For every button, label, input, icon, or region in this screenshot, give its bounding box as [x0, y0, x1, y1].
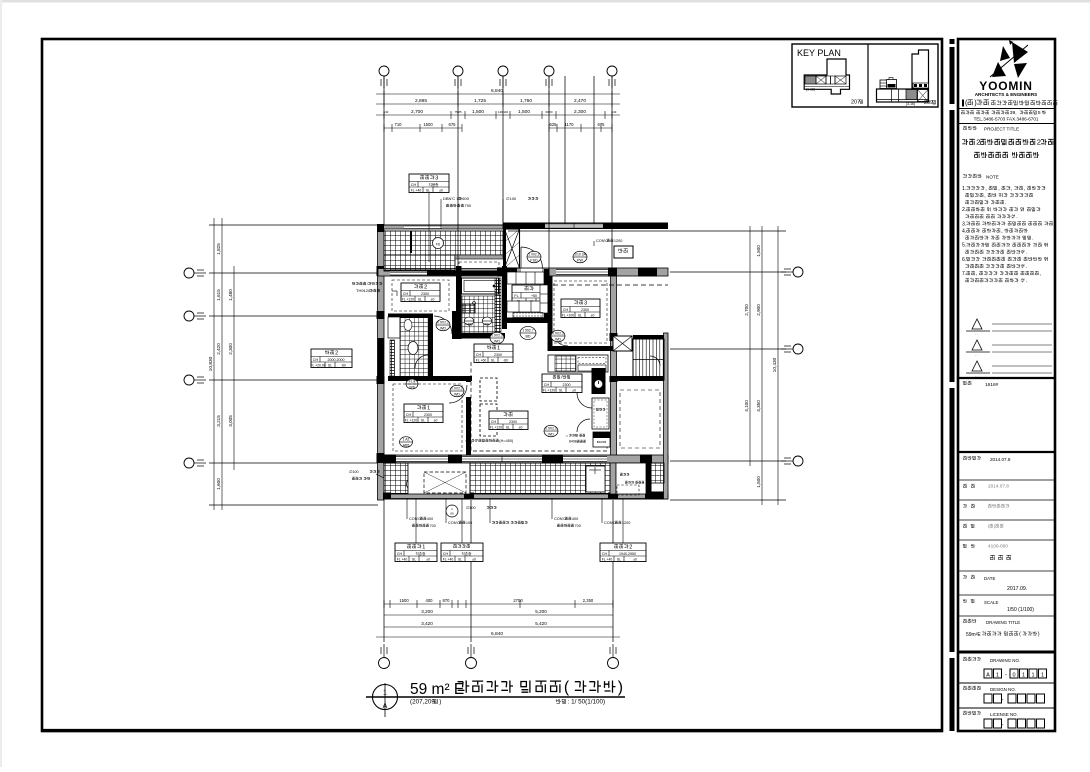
svg-text:1,615: 1,615: [216, 289, 221, 301]
svg-text:(H=450): (H=450): [499, 439, 514, 443]
svg-text:2014.07.8: 2014.07.8: [988, 484, 1009, 489]
svg-text:DRAWING TITLE: DRAWING TITLE: [986, 620, 1020, 625]
svg-text:FL +40: FL +40: [602, 557, 613, 561]
svg-text:1,500: 1,500: [518, 109, 530, 115]
svg-text:CH: CH: [443, 552, 449, 556]
svg-text:(3-16): (3-16): [906, 102, 915, 106]
svg-text:∅100: ∅100: [506, 196, 517, 201]
svg-text:400: 400: [427, 517, 433, 521]
svg-text:SCALE: SCALE: [984, 600, 998, 605]
svg-text:W6: W6: [409, 386, 414, 390]
svg-text:700: 700: [575, 524, 581, 528]
svg-text:WD: WD: [555, 338, 561, 342]
svg-text:1: 1: [422, 544, 425, 550]
svg-text:±0: ±0: [434, 418, 438, 422]
svg-text:SL: SL: [506, 425, 510, 429]
svg-text:(: (: [564, 679, 570, 696]
svg-text:6.: 6.: [962, 257, 966, 263]
svg-text:100: 100: [466, 521, 472, 525]
svg-text:SL: SL: [412, 557, 416, 561]
svg-text:400: 400: [426, 598, 434, 603]
svg-text:PROJECT TITLE: PROJECT TITLE: [984, 127, 1019, 132]
svg-text:SL: SL: [491, 358, 495, 362]
svg-text:1500: 1500: [399, 598, 409, 603]
svg-text:,: ,: [976, 271, 977, 277]
svg-text:SL: SL: [421, 418, 425, 422]
svg-text:CH: CH: [563, 308, 569, 312]
svg-text:FL 8: FL 8: [409, 380, 416, 384]
svg-text:1,600: 1,600: [216, 478, 221, 490]
svg-text:209: 209: [924, 100, 933, 106]
svg-text:직촌중: 직촌중: [462, 551, 473, 556]
svg-text:FL +40: FL +40: [397, 557, 408, 561]
svg-text:WD: WD: [494, 340, 500, 344]
svg-text:. .: . .: [975, 331, 978, 336]
svg-text:2: 2: [976, 138, 980, 147]
svg-text:1,825: 1,825: [216, 243, 221, 255]
svg-text:SL: SL: [328, 363, 332, 367]
svg-text:): ): [618, 679, 623, 696]
svg-text:2: 2: [335, 350, 338, 356]
svg-text:2,700: 2,700: [744, 304, 749, 316]
svg-text:-60: -60: [503, 358, 508, 362]
svg-text:,: ,: [984, 193, 985, 199]
svg-text:1,725: 1,725: [474, 98, 486, 104]
svg-text:DBN'C 15: DBN'C 15: [443, 196, 461, 201]
svg-text:-: -: [1005, 673, 1007, 679]
svg-text:FL +120: FL +120: [402, 297, 415, 301]
svg-text:): ): [1038, 632, 1040, 638]
svg-text:207: 207: [851, 100, 860, 106]
svg-text:2300: 2300: [563, 383, 571, 387]
svg-text:1 592.7: 1 592.7: [522, 329, 533, 333]
svg-text:SL: SL: [418, 297, 422, 301]
svg-text:2300: 2300: [581, 308, 589, 312]
svg-text:2,300: 2,300: [228, 343, 233, 355]
svg-text:4,350: 4,350: [756, 400, 761, 412]
svg-text:2: 2: [1037, 138, 1041, 147]
svg-text:CH: CH: [397, 552, 403, 556]
svg-text:790: 790: [464, 203, 471, 208]
svg-text:2300: 2300: [424, 413, 432, 417]
svg-text:-: -: [1002, 723, 1004, 729]
svg-text:2300: 2300: [509, 420, 517, 424]
svg-text:.: .: [1032, 236, 1033, 242]
svg-text:NOTE: NOTE: [986, 175, 999, 180]
svg-text:1: 1: [427, 405, 430, 411]
svg-text:2,900: 2,900: [756, 304, 761, 316]
svg-text:CH: CH: [476, 353, 482, 357]
svg-text:3.: 3.: [962, 221, 966, 227]
svg-text:2000,2000: 2000,2000: [328, 358, 345, 362]
svg-text:FL +120: FL +120: [405, 418, 418, 422]
svg-text:675: 675: [449, 122, 457, 127]
svg-text:FD: FD: [436, 243, 441, 247]
svg-text:0.9X2.2: 0.9X2.2: [491, 334, 503, 338]
svg-text:,: ,: [1011, 186, 1012, 192]
svg-text:0.9X2.2: 0.9X2.2: [545, 427, 557, 431]
svg-text:1200: 1200: [614, 239, 622, 243]
svg-text:400: 400: [572, 517, 578, 521]
svg-text:,: ,: [985, 186, 986, 192]
svg-text:±0: ±0: [426, 557, 430, 561]
svg-text:3,005: 3,005: [228, 415, 233, 427]
svg-text:4,100: 4,100: [744, 400, 749, 412]
svg-text:FL +120: FL +120: [543, 388, 556, 392]
svg-text:1: 1: [1022, 673, 1025, 679]
svg-text:675: 675: [598, 122, 606, 127]
svg-text:(: (: [1019, 632, 1021, 638]
svg-text:FL +40: FL +40: [411, 188, 422, 192]
svg-text:1/50 (1/100): 1/50 (1/100): [1007, 607, 1034, 613]
svg-text:7.: 7.: [962, 271, 966, 277]
svg-text:2: 2: [629, 544, 632, 550]
svg-text:±0: ±0: [472, 557, 476, 561]
svg-text:4.: 4.: [962, 228, 966, 234]
svg-text:0.9X2.2: 0.9X2.2: [552, 332, 564, 336]
svg-text:∅100: ∅100: [466, 506, 476, 510]
svg-text:.: .: [1026, 250, 1027, 256]
svg-text:PD: PD: [485, 323, 490, 327]
svg-text:±0: ±0: [633, 557, 637, 561]
svg-text:,: ,: [1040, 271, 1041, 277]
svg-text:1,480: 1,480: [228, 289, 233, 301]
svg-text:2.: 2.: [962, 207, 966, 213]
svg-text:140: 140: [612, 110, 617, 114]
svg-text:TEL.3486-5703 FAX.3486-6701: TEL.3486-5703 FAX.3486-6701: [974, 117, 1039, 122]
svg-text:SL: SL: [559, 388, 563, 392]
svg-text:: 1/ 50(1/100): : 1/ 50(1/100): [568, 699, 605, 706]
svg-text:FBD: FBD: [465, 323, 473, 327]
svg-text:(1-16): (1-16): [806, 88, 815, 92]
svg-text:10,430: 10,430: [772, 357, 778, 372]
svg-text:ARCHITECTS & ENGINEERS: ARCHITECTS & ENGINEERS: [975, 92, 1038, 97]
svg-text:WD: WD: [548, 433, 554, 437]
svg-text:직촌중: 직촌중: [416, 551, 427, 556]
svg-text:3,420: 3,420: [421, 621, 433, 626]
svg-text:2300: 2300: [494, 353, 502, 357]
svg-text:0.9X2.2: 0.9X2.2: [451, 387, 463, 391]
svg-text:,: ,: [1024, 186, 1025, 192]
svg-text:2017.09.: 2017.09.: [1007, 586, 1027, 592]
svg-text:CH: CH: [411, 183, 417, 187]
svg-text:2,470: 2,470: [574, 98, 586, 104]
svg-text:3,200: 3,200: [421, 609, 433, 614]
svg-text:DRAWING NO.: DRAWING NO.: [990, 658, 1020, 663]
svg-text:FSD: FSD: [530, 259, 538, 263]
svg-text:CON'C: CON'C: [596, 239, 608, 243]
svg-text:CH: CH: [544, 383, 550, 387]
svg-text:2,350: 2,350: [583, 598, 594, 603]
svg-text:-60: -60: [341, 363, 346, 367]
svg-text:,: ,: [998, 186, 999, 192]
svg-text:CON'C: CON'C: [448, 521, 460, 525]
svg-text:CH: CH: [491, 420, 497, 424]
svg-text:2: 2: [424, 284, 427, 290]
svg-text:CON'C: CON'C: [554, 517, 566, 521]
svg-text:WD: WD: [440, 327, 446, 331]
svg-text:59m²E: 59m²E: [966, 632, 981, 638]
svg-text:1: 1: [1041, 673, 1044, 679]
svg-text:10,830: 10,830: [208, 356, 214, 371]
svg-text:AB5: AB5: [403, 444, 410, 448]
svg-text:1,500: 1,500: [472, 109, 484, 115]
svg-text:2,885: 2,885: [415, 98, 427, 104]
svg-text:0.9X2.2: 0.9X2.2: [437, 321, 449, 325]
svg-text:CH: CH: [403, 292, 409, 296]
svg-text:KEY PLAN: KEY PLAN: [797, 48, 841, 58]
svg-text:0: 0: [1012, 673, 1015, 679]
svg-text:1: 1: [1031, 673, 1034, 679]
svg-text:A5: A5: [450, 512, 454, 516]
svg-text:-: -: [1002, 698, 1004, 704]
svg-text:1500: 1500: [423, 122, 433, 127]
svg-text:±0: ±0: [519, 425, 523, 429]
svg-text:6,840: 6,840: [491, 631, 503, 637]
svg-text:FL +100: FL +100: [562, 313, 575, 317]
svg-text:SL: SL: [426, 188, 430, 192]
svg-text:1: 1: [383, 690, 387, 697]
svg-text:.: .: [1026, 278, 1027, 284]
svg-text:(207,209: (207,209: [410, 699, 435, 706]
svg-text:3,215: 3,215: [216, 415, 221, 427]
svg-text:DESIGN NO.: DESIGN NO.: [990, 687, 1016, 692]
svg-text:±0: ±0: [591, 313, 595, 317]
svg-text:2300: 2300: [421, 292, 429, 296]
svg-text:625: 625: [550, 122, 558, 127]
svg-text:39,: 39,: [1010, 110, 1017, 116]
svg-text:BD: BD: [526, 335, 531, 339]
svg-text:CON'C: CON'C: [604, 521, 616, 525]
svg-text:CH: CH: [406, 413, 412, 417]
svg-text:710: 710: [395, 122, 403, 127]
svg-text:DATE: DATE: [984, 576, 995, 581]
svg-text:LICENSE NO.: LICENSE NO.: [990, 712, 1018, 717]
svg-text:1.: 1.: [962, 186, 966, 192]
svg-text:): ): [974, 98, 976, 107]
svg-text:870: 870: [443, 598, 451, 603]
svg-text:2700: 2700: [513, 598, 523, 603]
svg-text:3: 3: [435, 175, 438, 181]
svg-text:B40NB: B40NB: [597, 440, 607, 444]
svg-text:. .: . .: [975, 352, 978, 357]
svg-text:600: 600: [462, 196, 469, 201]
svg-text:,: ,: [1001, 228, 1002, 234]
svg-text:FL +60: FL +60: [476, 358, 487, 362]
svg-text:∅100: ∅100: [349, 470, 359, 474]
svg-text:CON'C: CON'C: [409, 517, 421, 521]
svg-text:1: 1: [996, 673, 999, 679]
svg-text:59 m² E: 59 m² E: [410, 681, 464, 698]
svg-text:.: .: [1005, 200, 1006, 206]
svg-text:2,700: 2,700: [411, 109, 423, 115]
svg-text:1,500: 1,500: [756, 245, 761, 257]
svg-text:1 002.2: 1 002.2: [528, 253, 539, 257]
svg-text:TH9120: TH9120: [356, 288, 371, 293]
svg-text:1 A2: 1 A2: [403, 438, 410, 442]
svg-text:1,760: 1,760: [520, 98, 532, 104]
svg-text:FL +20.00: FL +20.00: [310, 363, 325, 367]
svg-text:.: .: [1026, 264, 1027, 270]
svg-text:3: 3: [584, 300, 587, 306]
svg-text:): ): [439, 699, 441, 706]
svg-text:140: 140: [384, 110, 389, 114]
svg-text:CH: CH: [313, 358, 319, 362]
svg-text:840B: 840B: [569, 440, 578, 444]
svg-text:±0: ±0: [439, 188, 443, 192]
svg-text:.: .: [1016, 214, 1017, 220]
svg-text:FL +120: FL +120: [490, 425, 503, 429]
svg-text:5,420: 5,420: [535, 621, 547, 626]
svg-text:2,420: 2,420: [216, 343, 221, 355]
svg-text:5.: 5.: [962, 243, 966, 249]
svg-text:1616#: 1616#: [985, 382, 999, 388]
svg-text:SL: SL: [578, 313, 582, 317]
svg-text:WD: WD: [454, 393, 460, 397]
svg-text:PW: PW: [577, 259, 583, 263]
svg-text:±0: ±0: [431, 297, 435, 301]
svg-text:2,300: 2,300: [574, 109, 586, 115]
svg-text:FL: FL: [514, 294, 518, 298]
svg-text:지붕층: 지붕층: [429, 182, 440, 187]
svg-text:A: A: [986, 673, 990, 679]
svg-text:5: 5: [1038, 110, 1041, 116]
svg-text:1940,2950: 1940,2950: [619, 552, 636, 556]
svg-text:5,200: 5,200: [535, 609, 547, 614]
svg-text:FL +40: FL +40: [443, 557, 454, 561]
svg-text:700: 700: [430, 524, 436, 528]
svg-text:A: A: [383, 703, 388, 710]
svg-text:6,840: 6,840: [491, 88, 503, 94]
svg-text:2014.07.8: 2014.07.8: [990, 457, 1011, 462]
svg-text:1,500: 1,500: [756, 476, 761, 488]
svg-text:1/10 3A: 1/10 3A: [574, 253, 586, 257]
svg-text:CH: CH: [602, 552, 608, 556]
svg-text:YOOMIN: YOOMIN: [979, 79, 1032, 93]
svg-text:SL: SL: [458, 557, 462, 561]
svg-text:SL: SL: [617, 557, 621, 561]
svg-text:1: 1: [497, 345, 500, 351]
svg-text:1170: 1170: [564, 122, 574, 127]
svg-text:±0: ±0: [572, 388, 576, 392]
svg-text:+50: +50: [531, 294, 537, 298]
svg-text:4100-000: 4100-000: [988, 544, 1008, 549]
